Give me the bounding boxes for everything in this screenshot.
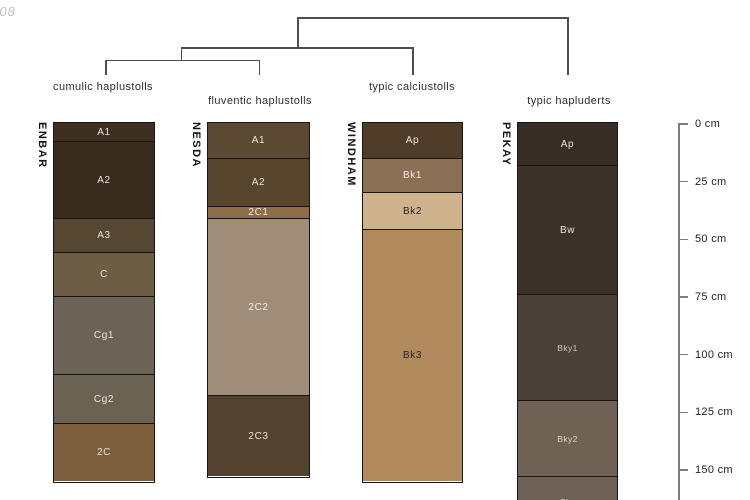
horizon-label: 2C1 [248,207,268,218]
depth-axis-tick [678,181,688,183]
horizon-nesda-a1: A1 [208,123,309,158]
dendrogram-line [105,60,107,76]
horizon-label: 2C [97,447,111,458]
depth-axis-label: 0 cm [695,117,720,131]
group-label-typic-calciustolls: typic calciustolls [369,81,455,93]
horizon-label: Bk2 [403,206,422,217]
depth-axis-tick [678,412,688,414]
horizon-label: Bky1 [557,343,578,353]
horizon-enbar-cg2: Cg2 [54,374,154,423]
horizon-label: A2 [97,175,110,186]
dendrogram-line [181,47,414,49]
horizon-label: Bky2 [557,434,578,444]
horizon-label: Bw [560,225,575,236]
depth-axis-label: 25 cm [695,175,726,189]
depth-axis-tick [678,354,688,356]
horizon-enbar-a2: A2 [54,141,154,218]
horizon-pekay-bky1: Bky1 [518,294,617,400]
profile-column-windham: ApBk1Bk2Bk3 [362,122,463,483]
depth-axis-tick [678,469,688,471]
horizon-label: Ap [561,139,574,150]
horizon-enbar-a3: A3 [54,218,154,252]
horizon-pekay-bw: Bw [518,165,617,294]
depth-axis-tick [678,239,688,241]
horizon-enbar-cg1: Cg1 [54,296,154,374]
horizon-pekay-ap: Ap [518,123,617,165]
horizon-label: A2 [252,177,265,188]
profile-name-pekay: PEKAY [500,122,512,166]
profile-name-enbar: ENBAR [36,122,48,169]
horizon-label: Bk3 [403,350,422,361]
group-label-fluventic-haplustolls: fluventic haplustolls [208,95,312,107]
group-label-cumulic-haplustolls: cumulic haplustolls [53,81,153,93]
horizon-label: A3 [97,230,110,241]
depth-axis-label: 50 cm [695,232,726,246]
dendrogram-line [105,60,260,62]
horizon-label: 2C3 [248,431,268,442]
profile-column-pekay: ApBwBky1Bky2Cky [517,122,618,500]
horizon-nesda-2c2: 2C2 [208,218,309,395]
depth-axis-tick [678,123,688,125]
dendrogram-line [567,17,569,75]
horizon-windham-bk2: Bk2 [363,192,462,229]
depth-axis-label: 100 cm [695,348,733,362]
horizon-pekay-cky: Cky [518,476,617,500]
depth-axis-tick [678,296,688,298]
horizon-nesda-2c3: 2C3 [208,395,309,476]
horizon-nesda-2c1: 2C1 [208,206,309,218]
horizon-label: Ap [406,135,419,146]
horizon-label: Bk1 [403,170,422,181]
dendrogram-line [297,17,299,48]
profile-name-windham: WINDHAM [345,122,357,187]
horizon-label: 2C2 [248,302,268,313]
horizon-enbar-a1: A1 [54,123,154,141]
horizon-label: A1 [252,135,265,146]
horizon-label: A1 [97,127,110,138]
depth-axis-label: 125 cm [695,405,733,419]
profile-column-nesda: A1A22C12C22C3 [207,122,310,478]
dendrogram-line [259,60,261,76]
dendrogram-line [412,47,414,75]
horizon-label: C [100,269,108,280]
horizon-windham-bk3: Bk3 [363,229,462,481]
watermark: -08 [0,4,16,19]
group-label-typic-hapluderts: typic hapluderts [527,95,610,107]
horizon-label: Cg1 [94,330,114,341]
soil-profile-figure: -08 cumulic haplustolls fluventic haplus… [0,0,750,500]
horizon-label: Cg2 [94,394,114,405]
horizon-enbar-2c: 2C [54,423,154,481]
depth-axis-label: 75 cm [695,290,726,304]
profile-name-nesda: NESDA [190,122,202,168]
horizon-enbar-c: C [54,252,154,296]
profile-column-enbar: A1A2A3CCg1Cg22C [53,122,155,483]
horizon-windham-ap: Ap [363,123,462,158]
horizon-windham-bk1: Bk1 [363,158,462,192]
horizon-nesda-a2: A2 [208,158,309,206]
dendrogram-line [297,17,569,19]
horizon-pekay-bky2: Bky2 [518,400,617,476]
depth-axis-label: 150 cm [695,463,733,477]
